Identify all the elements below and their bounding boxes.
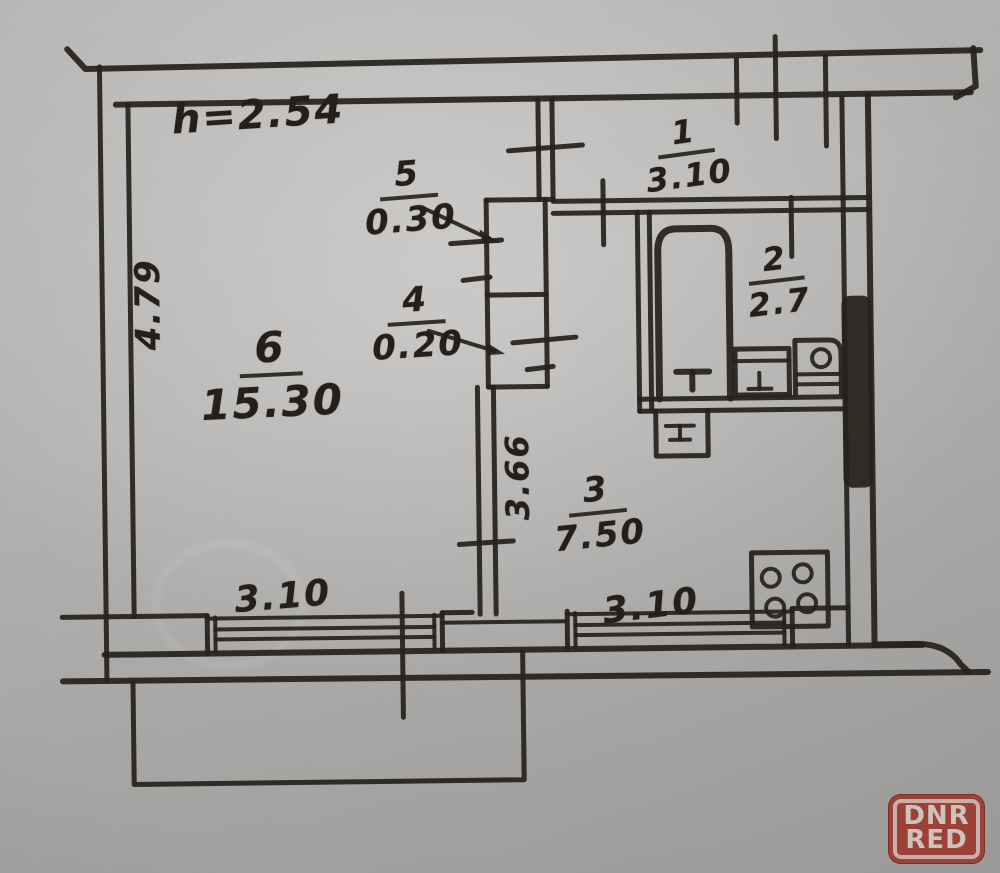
room1-number: 1: [653, 109, 715, 159]
room2-label: 2 2.7: [741, 236, 813, 325]
watermark-frame: DNR RED: [893, 799, 980, 859]
room6-area: 15.30: [200, 374, 345, 430]
floor-plan-drawing: h=2.54 5 0.30 4 0.20 6 15.30 1 3.10 2 2.…: [0, 0, 1000, 873]
sink: [735, 348, 790, 395]
entrance-door-block: [841, 295, 873, 487]
room4-number: 4: [385, 278, 445, 327]
water-heater: [795, 340, 842, 395]
dim-window-left: 3.10: [233, 572, 333, 621]
stove-burner: [766, 599, 784, 617]
room5-label: 5 0.30: [360, 150, 459, 243]
stove-burner: [762, 569, 780, 587]
room6-number: 6: [237, 321, 303, 378]
room3-number: 3: [565, 467, 627, 518]
room2-area: 2.7: [746, 280, 813, 325]
right-wall: [839, 95, 876, 645]
watermark-dnr-red: DNR RED: [888, 794, 985, 864]
dim-hall-wall: 3.66: [498, 433, 537, 520]
photographed-floor-plan: h=2.54 5 0.30 4 0.20 6 15.30 1 3.10 2 2.…: [0, 0, 1000, 873]
closet-5: [486, 199, 555, 387]
room5-number: 5: [377, 152, 438, 202]
bathtub: [657, 228, 730, 399]
central-partition-wall: [474, 99, 558, 614]
room2-number: 2: [744, 237, 805, 286]
room1-label: 1 3.10: [638, 107, 735, 200]
room4-area: 0.20: [371, 323, 465, 369]
bathroom-walls: [637, 210, 845, 412]
room3-label: 3 7.50: [548, 465, 648, 560]
room4-label: 4 0.20: [368, 277, 465, 369]
left-wall: [99, 67, 134, 681]
toilet: [656, 410, 709, 456]
hallway-bottom-wall: [553, 197, 869, 213]
watermark-line2: RED: [905, 829, 967, 853]
closet-4: [488, 386, 547, 387]
stove-burner: [794, 564, 812, 582]
balcony: [133, 652, 525, 785]
room5-area: 0.30: [364, 196, 459, 243]
dim-left-wall: 4.79: [128, 258, 169, 350]
room6-label: 6 15.30: [197, 319, 345, 430]
